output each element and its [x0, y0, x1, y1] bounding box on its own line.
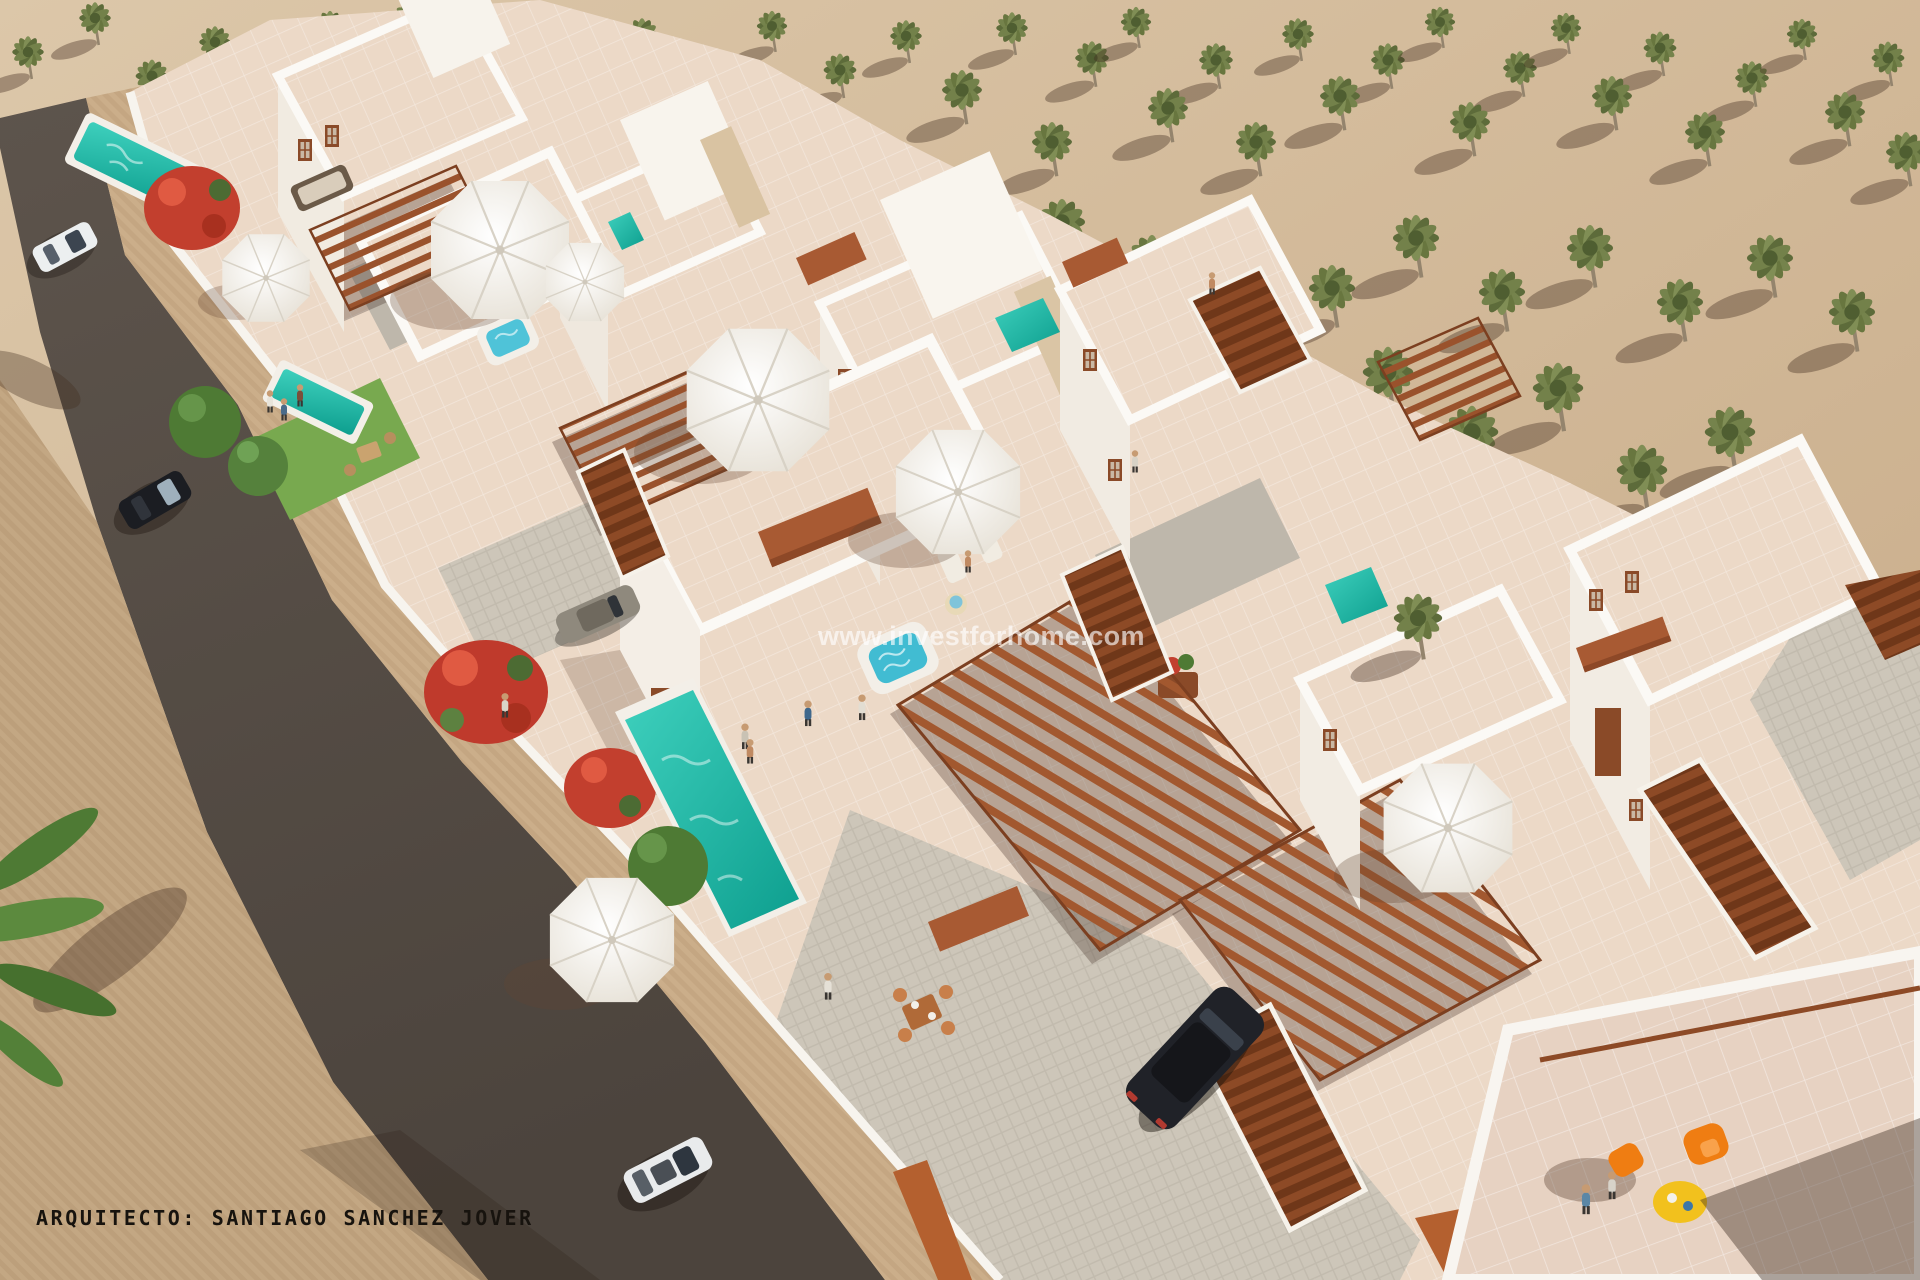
cafe-table: [1653, 1181, 1707, 1223]
parasol: [687, 329, 830, 472]
garden-tree: [169, 386, 241, 458]
architect-credit: ARQUITECTO: SANTIAGO SANCHEZ JOVER: [36, 1206, 534, 1230]
parasol: [1384, 764, 1513, 893]
red-flower-bush: [424, 640, 548, 744]
parasol: [222, 234, 309, 321]
parasol: [550, 878, 674, 1002]
render-image: www.investforhome.com ARQUITECTO: SANTIA…: [0, 0, 1920, 1280]
parasol: [546, 243, 624, 321]
garden-tree: [228, 436, 288, 496]
red-flower-bush: [144, 166, 240, 250]
parasol: [896, 430, 1020, 554]
door: [1595, 708, 1621, 776]
watermark: www.investforhome.com: [818, 621, 1145, 652]
